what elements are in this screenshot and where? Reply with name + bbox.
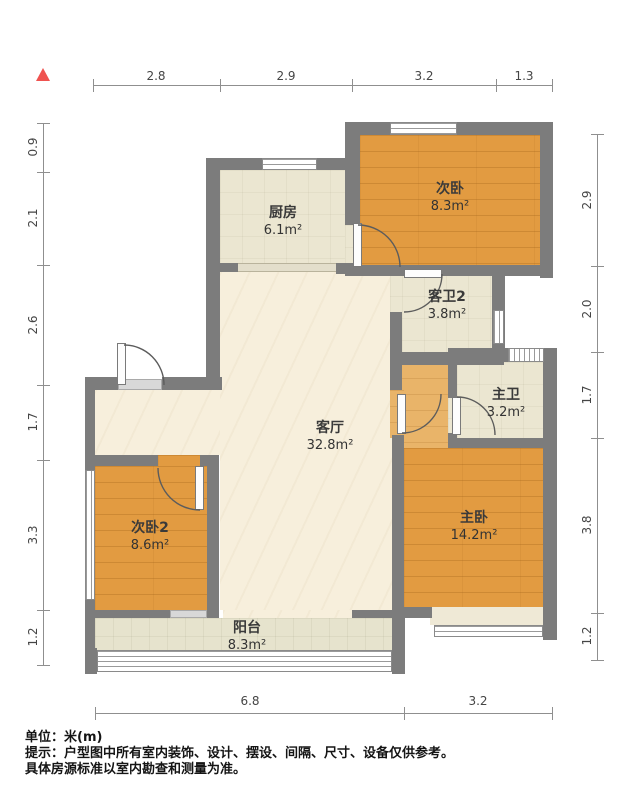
room-area: 8.3m² bbox=[431, 198, 470, 215]
room-area: 8.6m² bbox=[131, 537, 170, 554]
wall bbox=[95, 455, 158, 466]
kitchen-window bbox=[262, 158, 317, 170]
dim-top-1: 2.8 bbox=[146, 69, 165, 83]
room-label-bath2: 客卫2 3.8m² bbox=[428, 289, 467, 323]
wall bbox=[392, 648, 405, 674]
dim-tick bbox=[591, 438, 604, 439]
wall bbox=[207, 455, 219, 618]
room-label-bedroom3: 次卧2 8.6m² bbox=[131, 520, 170, 554]
master-bedroom-door-leaf bbox=[397, 394, 406, 434]
floorplan-canvas: 厨房 6.1m² 次卧 8.3m² 客卫2 3.8m² 主卫 3.2m² 客厅 … bbox=[0, 0, 643, 800]
room-name: 厨房 bbox=[264, 205, 303, 222]
tip-note-2: 具体房源标准以室内勘查和测量为准。 bbox=[25, 762, 454, 778]
dim-tick bbox=[37, 172, 50, 173]
dim-left-2: 2.1 bbox=[26, 208, 40, 227]
dim-top-4: 1.3 bbox=[514, 69, 533, 83]
dim-line-bottom bbox=[95, 713, 552, 714]
dim-left-1: 0.9 bbox=[26, 137, 40, 156]
room-area: 32.8m² bbox=[307, 437, 354, 454]
room-name: 主卧 bbox=[451, 510, 498, 527]
dim-tick bbox=[552, 707, 553, 720]
dim-line-left bbox=[43, 123, 44, 665]
dim-tick bbox=[591, 660, 604, 661]
wall bbox=[540, 122, 553, 278]
dim-tick bbox=[552, 79, 553, 92]
wall bbox=[448, 438, 557, 448]
room-name: 次卧 bbox=[431, 181, 470, 198]
master-bedroom-entry bbox=[402, 362, 448, 448]
bath2-doorway bbox=[390, 274, 402, 312]
dim-right-5: 1.2 bbox=[580, 626, 594, 645]
room-area: 8.3m² bbox=[228, 637, 267, 654]
room-label-master-bath: 主卫 3.2m² bbox=[487, 387, 526, 421]
wall bbox=[390, 312, 402, 390]
wall bbox=[162, 377, 222, 390]
wall bbox=[360, 265, 540, 276]
room-area: 14.2m² bbox=[451, 527, 498, 544]
dim-left-6: 1.2 bbox=[26, 627, 40, 646]
dim-top-3: 3.2 bbox=[414, 69, 433, 83]
bedroom3-door-leaf bbox=[195, 466, 204, 510]
kitchen-pass-sill bbox=[238, 263, 336, 272]
dim-right-4: 3.8 bbox=[580, 515, 594, 534]
dim-line-top bbox=[93, 85, 552, 86]
dim-left-4: 1.7 bbox=[26, 412, 40, 431]
dim-tick bbox=[591, 266, 604, 267]
room-name: 阳台 bbox=[228, 620, 267, 637]
room-area: 3.8m² bbox=[428, 306, 467, 323]
master-bath-window bbox=[508, 348, 544, 362]
room-label-bedroom2: 次卧 8.3m² bbox=[431, 181, 470, 215]
dim-tick bbox=[352, 79, 353, 92]
room-name: 主卫 bbox=[487, 387, 526, 404]
unit-note: 单位：米(m) bbox=[25, 730, 454, 746]
room-label-kitchen: 厨房 6.1m² bbox=[264, 205, 303, 239]
bedroom3-doorway bbox=[158, 455, 200, 466]
room-label-balcony: 阳台 8.3m² bbox=[228, 620, 267, 654]
living-floor-hall bbox=[95, 390, 220, 455]
entry-door-leaf bbox=[117, 343, 126, 385]
wall bbox=[392, 435, 404, 610]
dim-tick bbox=[496, 79, 497, 92]
dim-tick bbox=[37, 460, 50, 461]
footer-notes: 单位：米(m) 提示：户型图中所有室内装饰、设计、摆设、间隔、尺寸、设备仅供参考… bbox=[25, 730, 454, 778]
dim-tick bbox=[37, 265, 50, 266]
wall bbox=[220, 263, 238, 272]
tip-note: 提示：户型图中所有室内装饰、设计、摆设、间隔、尺寸、设备仅供参考。 bbox=[25, 746, 454, 762]
wall bbox=[404, 607, 432, 618]
room-label-master-bedroom: 主卧 14.2m² bbox=[451, 510, 498, 544]
living-balcony-passage bbox=[223, 610, 352, 618]
dim-tick bbox=[591, 134, 604, 135]
floorplan: 厨房 6.1m² 次卧 8.3m² 客卫2 3.8m² 主卫 3.2m² 客厅 … bbox=[0, 0, 643, 800]
dim-tick bbox=[37, 665, 50, 666]
room-label-living: 客厅 32.8m² bbox=[307, 420, 354, 454]
wall bbox=[206, 158, 220, 388]
bath2-window bbox=[493, 310, 504, 344]
bath2-door-leaf bbox=[404, 269, 442, 278]
bay-window-floor bbox=[430, 607, 543, 625]
room-name: 客卫2 bbox=[428, 289, 467, 306]
wall bbox=[345, 135, 360, 225]
dim-bottom-1: 6.8 bbox=[240, 694, 259, 708]
dim-tick bbox=[37, 610, 50, 611]
room-name: 客厅 bbox=[307, 420, 354, 437]
dim-right-3: 1.7 bbox=[580, 385, 594, 404]
bedroom3-window bbox=[85, 470, 95, 600]
dim-right-2: 2.0 bbox=[580, 299, 594, 318]
bedroom3-balcony-sill bbox=[170, 610, 207, 618]
room-area: 3.2m² bbox=[487, 404, 526, 421]
dim-left-5: 3.3 bbox=[26, 525, 40, 544]
wall bbox=[543, 348, 557, 640]
dim-tick bbox=[37, 385, 50, 386]
master-bath-door-leaf bbox=[452, 397, 461, 435]
wall bbox=[85, 648, 97, 674]
room-area: 6.1m² bbox=[264, 222, 303, 239]
bedroom2-door-leaf bbox=[353, 223, 362, 267]
dim-tick bbox=[220, 79, 221, 92]
dim-tick bbox=[591, 352, 604, 353]
dim-top-2: 2.9 bbox=[276, 69, 295, 83]
dim-tick bbox=[95, 707, 96, 720]
bedroom2-window bbox=[390, 122, 457, 135]
room-name: 次卧2 bbox=[131, 520, 170, 537]
dim-line-right bbox=[597, 134, 598, 660]
dim-right-1: 2.9 bbox=[580, 190, 594, 209]
dim-left-3: 2.6 bbox=[26, 315, 40, 334]
dim-bottom-2: 3.2 bbox=[468, 694, 487, 708]
dim-tick bbox=[37, 123, 50, 124]
dim-tick bbox=[404, 707, 405, 720]
wall bbox=[448, 362, 457, 398]
bay-window bbox=[434, 625, 543, 637]
dim-tick bbox=[591, 613, 604, 614]
dim-tick bbox=[93, 79, 94, 92]
